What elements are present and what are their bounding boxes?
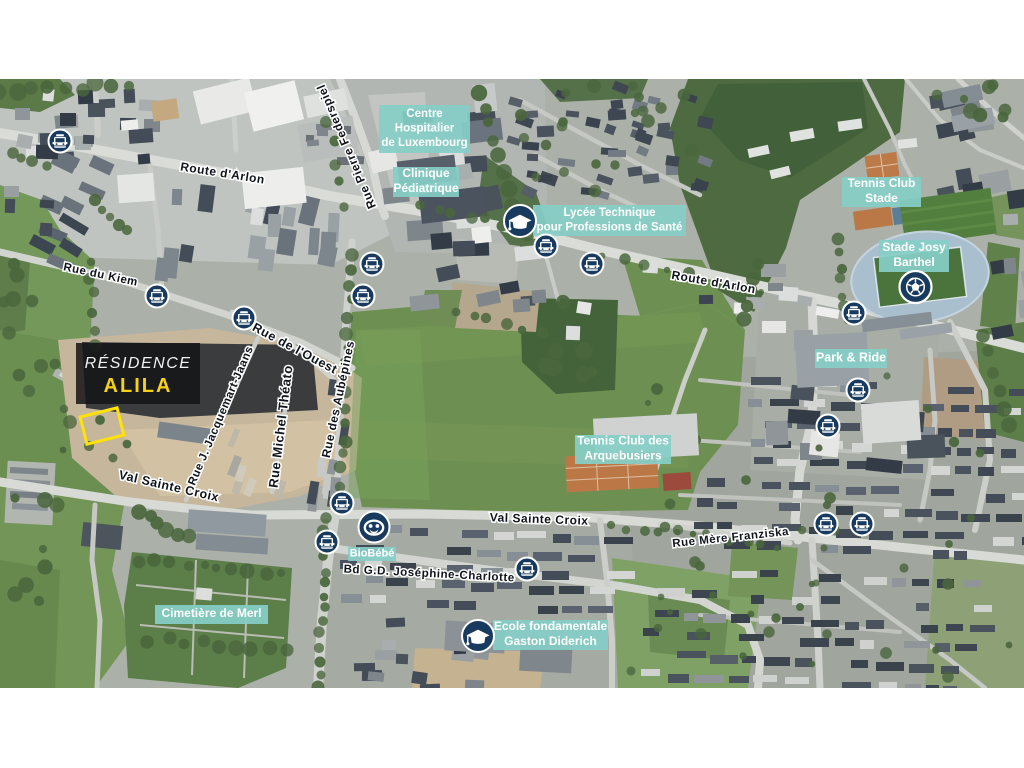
svg-text:Hospitalier: Hospitalier xyxy=(395,123,455,135)
svg-text:Clinique: Clinique xyxy=(402,166,450,180)
svg-text:Lycée Technique: Lycée Technique xyxy=(563,207,655,219)
svg-text:Cimetière de Merl: Cimetière de Merl xyxy=(161,606,261,620)
svg-text:Ecole fondamentale: Ecole fondamentale xyxy=(494,619,608,633)
svg-text:Barthel: Barthel xyxy=(893,255,934,269)
svg-text:Centre: Centre xyxy=(406,108,442,120)
svg-text:RÉSIDENCE: RÉSIDENCE xyxy=(85,353,192,372)
svg-text:pour Professions de Santé: pour Professions de Santé xyxy=(537,221,683,233)
svg-text:BioBébé: BioBébé xyxy=(350,547,395,559)
svg-text:Tennis Club des: Tennis Club des xyxy=(577,434,669,448)
svg-text:Pédiatrique: Pédiatrique xyxy=(393,181,459,195)
svg-text:Stade Josy: Stade Josy xyxy=(882,240,946,254)
svg-text:Stade: Stade xyxy=(865,191,898,205)
svg-text:Park & Ride: Park & Ride xyxy=(816,350,886,364)
svg-text:de Luxembourg: de Luxembourg xyxy=(381,137,467,149)
svg-text:Tennis Club: Tennis Club xyxy=(848,176,916,190)
svg-text:Gaston Diderich: Gaston Diderich xyxy=(504,634,597,648)
svg-text:ALILA: ALILA xyxy=(104,375,173,397)
svg-text:Arquebusiers: Arquebusiers xyxy=(584,449,662,463)
